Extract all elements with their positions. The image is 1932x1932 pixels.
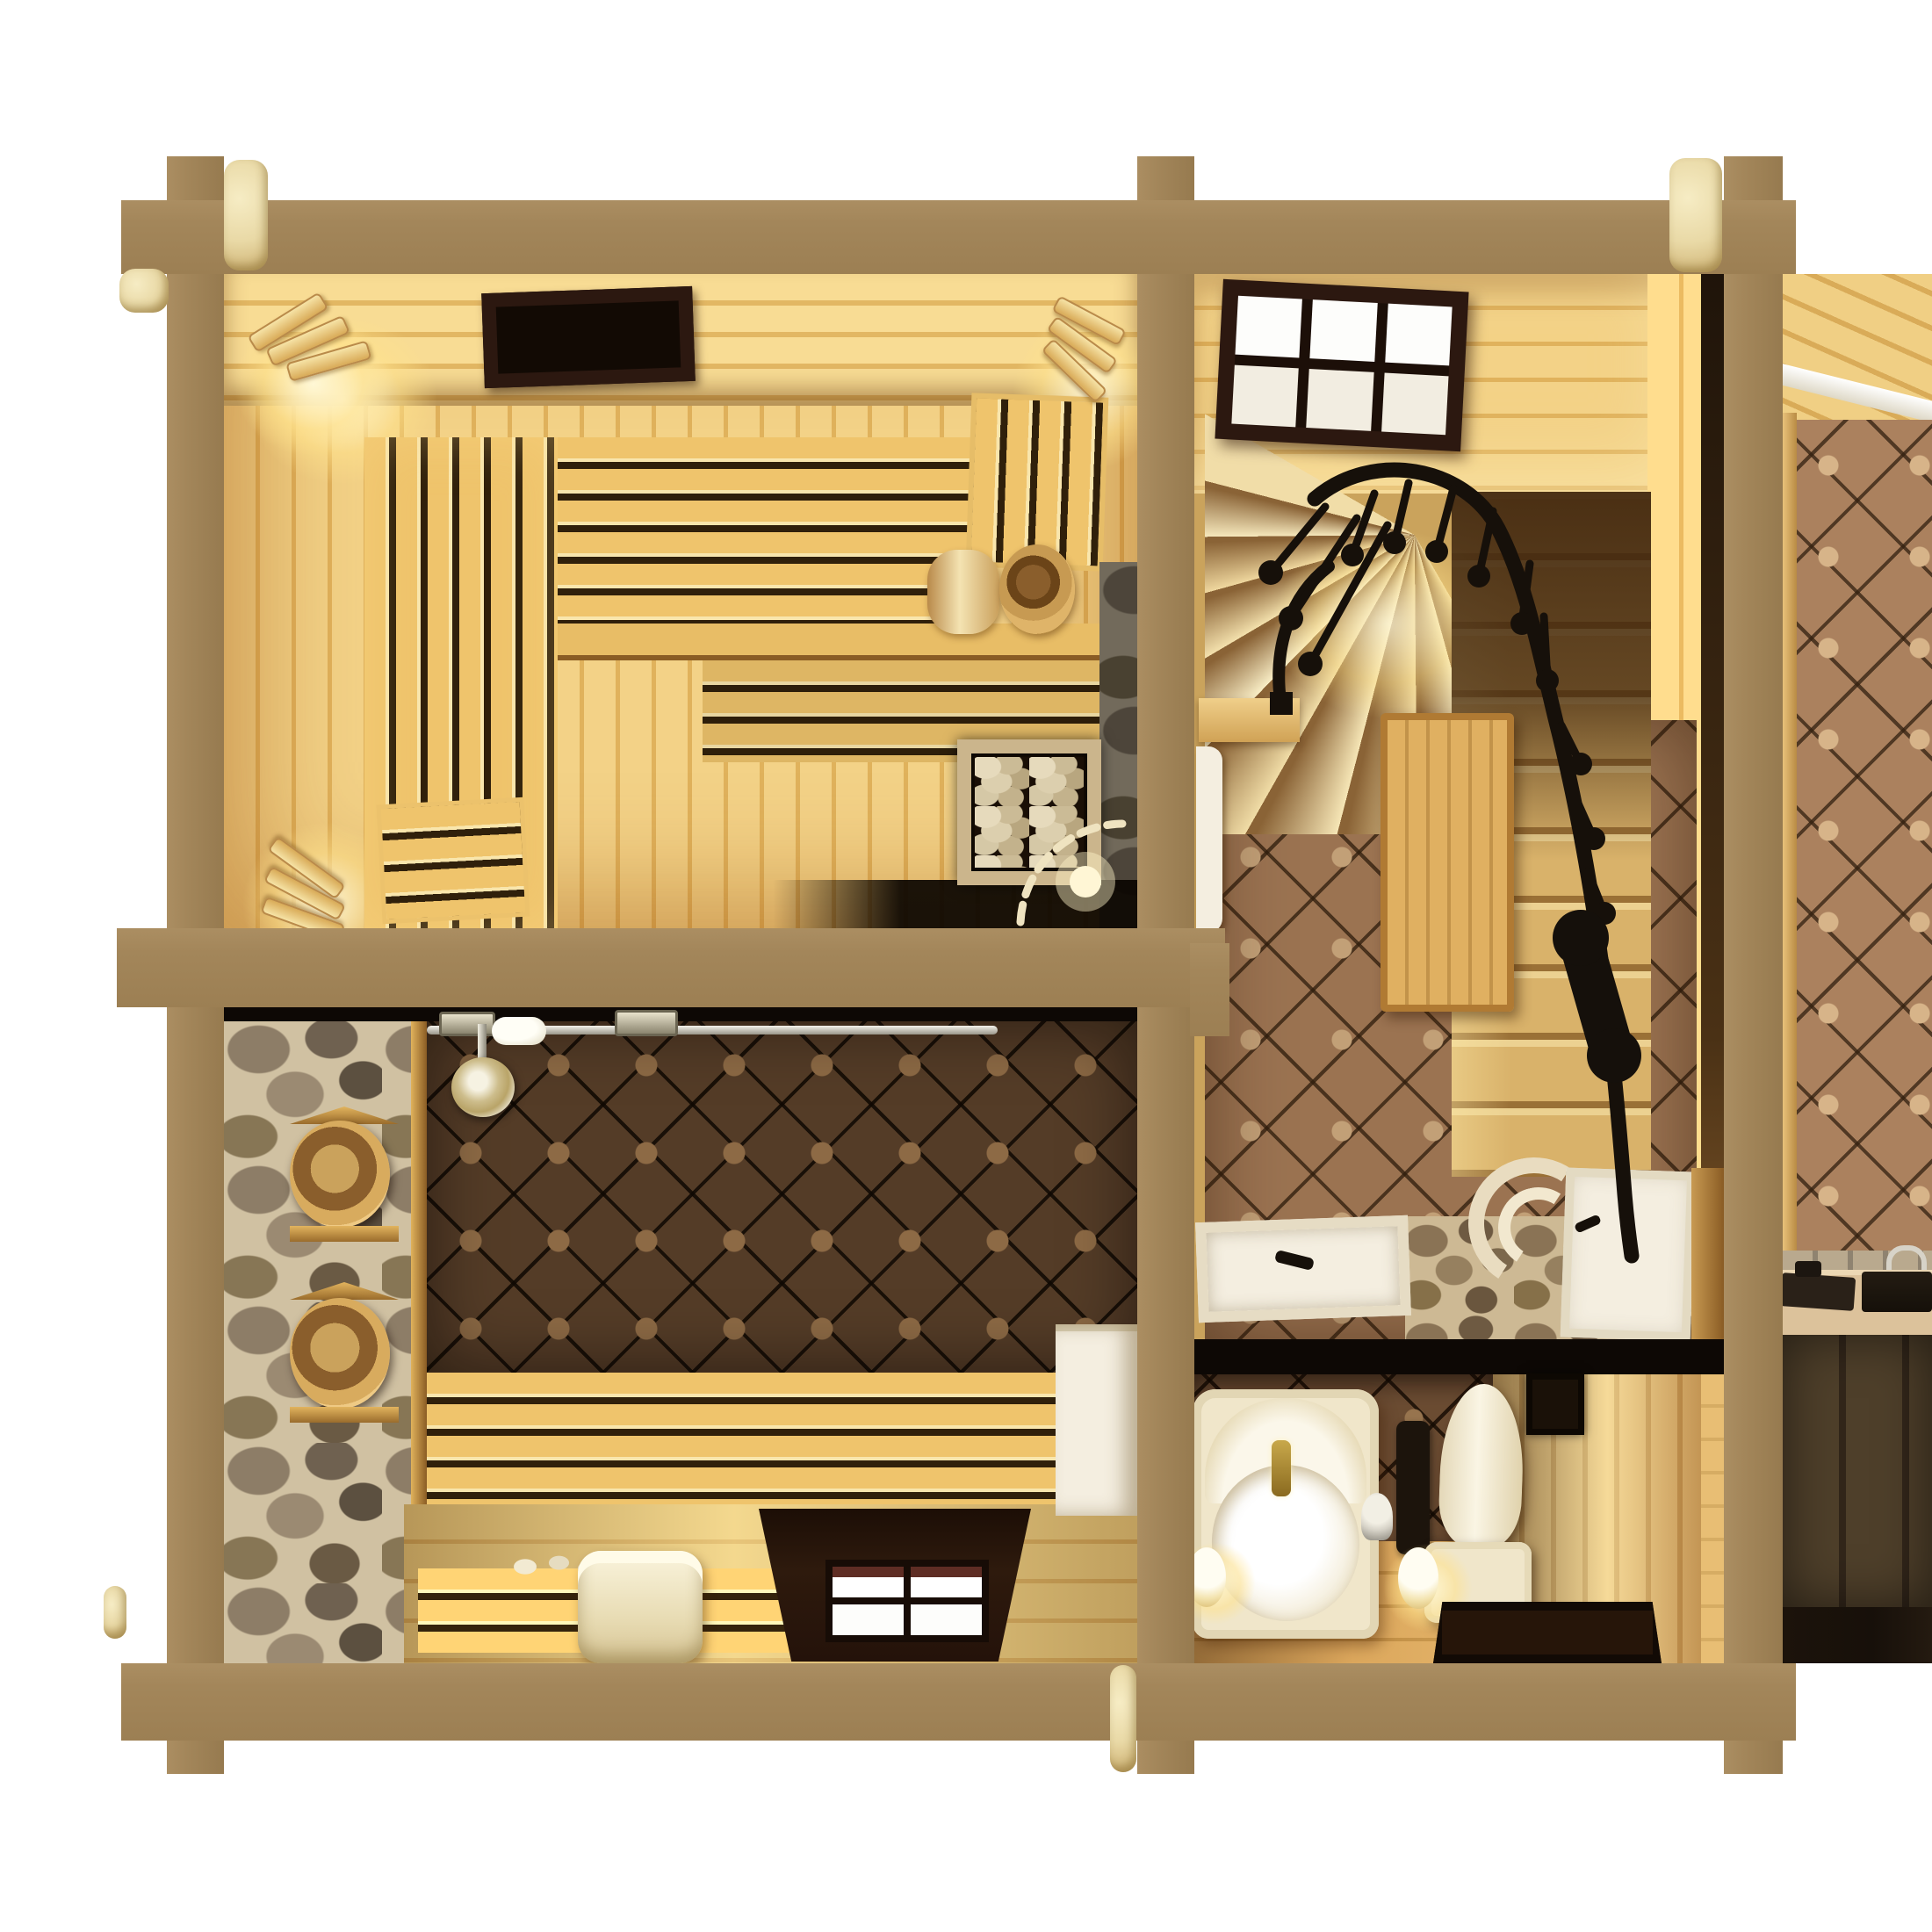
washroom-valve-right <box>615 1010 678 1036</box>
sauna-ceiling-vent <box>481 286 696 388</box>
washroom-ceramic-handle <box>492 1017 546 1045</box>
side-room-tile-wall <box>1783 420 1932 1251</box>
stair-box <box>1381 713 1514 1012</box>
side-room-wood-post <box>1783 413 1797 1256</box>
floor-divider-black <box>1194 1339 1724 1374</box>
sconce-right <box>1398 1547 1438 1609</box>
washroom-top-line <box>224 1007 1137 1021</box>
washroom-window <box>825 1560 989 1642</box>
washroom-towel <box>578 1551 703 1663</box>
bucket-shelf-2-bottom <box>290 1407 399 1423</box>
side-room-cabinets <box>1783 1335 1932 1607</box>
bathtub-faucet <box>1272 1440 1291 1496</box>
sauna-bench-top <box>558 437 970 624</box>
sauna-heater-stones <box>975 757 1084 868</box>
washroom-cabinet <box>1056 1324 1137 1516</box>
frame-beam-middle-notch <box>1190 943 1229 1036</box>
shower-tray <box>1195 1215 1411 1323</box>
washroom-wall-bench <box>427 1373 1137 1504</box>
bucket-shelf-1-bottom <box>290 1226 399 1242</box>
floorplan-render <box>0 0 1932 1932</box>
sauna-stone-wall-strip <box>1099 562 1137 928</box>
hall-side-door-leaf <box>1196 746 1222 933</box>
frame-beam-middle <box>117 928 1225 1007</box>
log-end-left-below-beam <box>119 269 169 313</box>
log-end-bottom-left <box>104 1586 126 1639</box>
sauna-floor-shadow <box>773 880 1137 928</box>
sauna-towel-roll <box>927 550 999 634</box>
washroom-valve-left <box>439 1012 495 1036</box>
log-end-bottom-middle <box>1110 1665 1136 1772</box>
bathroom-wall-window <box>1526 1373 1584 1435</box>
stair-hall-shelf <box>1199 698 1300 742</box>
vanity-mirror <box>1361 1493 1393 1540</box>
log-end-top-right <box>1669 158 1722 272</box>
frame-post-right <box>1724 156 1783 1774</box>
frame-beam-top <box>121 200 1796 274</box>
wall-bucket-2 <box>290 1298 390 1409</box>
counter-sink-dark <box>1780 1272 1856 1311</box>
counter-sink-faucet <box>1795 1261 1821 1277</box>
wall-bucket-1 <box>290 1121 390 1228</box>
sauna-backrest-rack <box>377 797 530 925</box>
hall-window-glass <box>1231 296 1452 436</box>
frame-beam-bottom <box>121 1663 1796 1741</box>
shower-head <box>451 1057 515 1117</box>
counter-chrome-faucet <box>1886 1245 1927 1270</box>
log-end-top-left <box>224 160 268 270</box>
counter-hob-dark <box>1862 1272 1932 1312</box>
side-room-dark-floor <box>1783 1607 1932 1663</box>
hall-bottom-door <box>1561 1167 1697 1341</box>
hall-window <box>1215 279 1468 451</box>
washroom-tile-wall <box>427 1021 1137 1373</box>
hall-bottom-door-trim <box>1691 1168 1724 1339</box>
dark-basin <box>1433 1602 1662 1663</box>
sauna-bucket <box>999 544 1075 634</box>
